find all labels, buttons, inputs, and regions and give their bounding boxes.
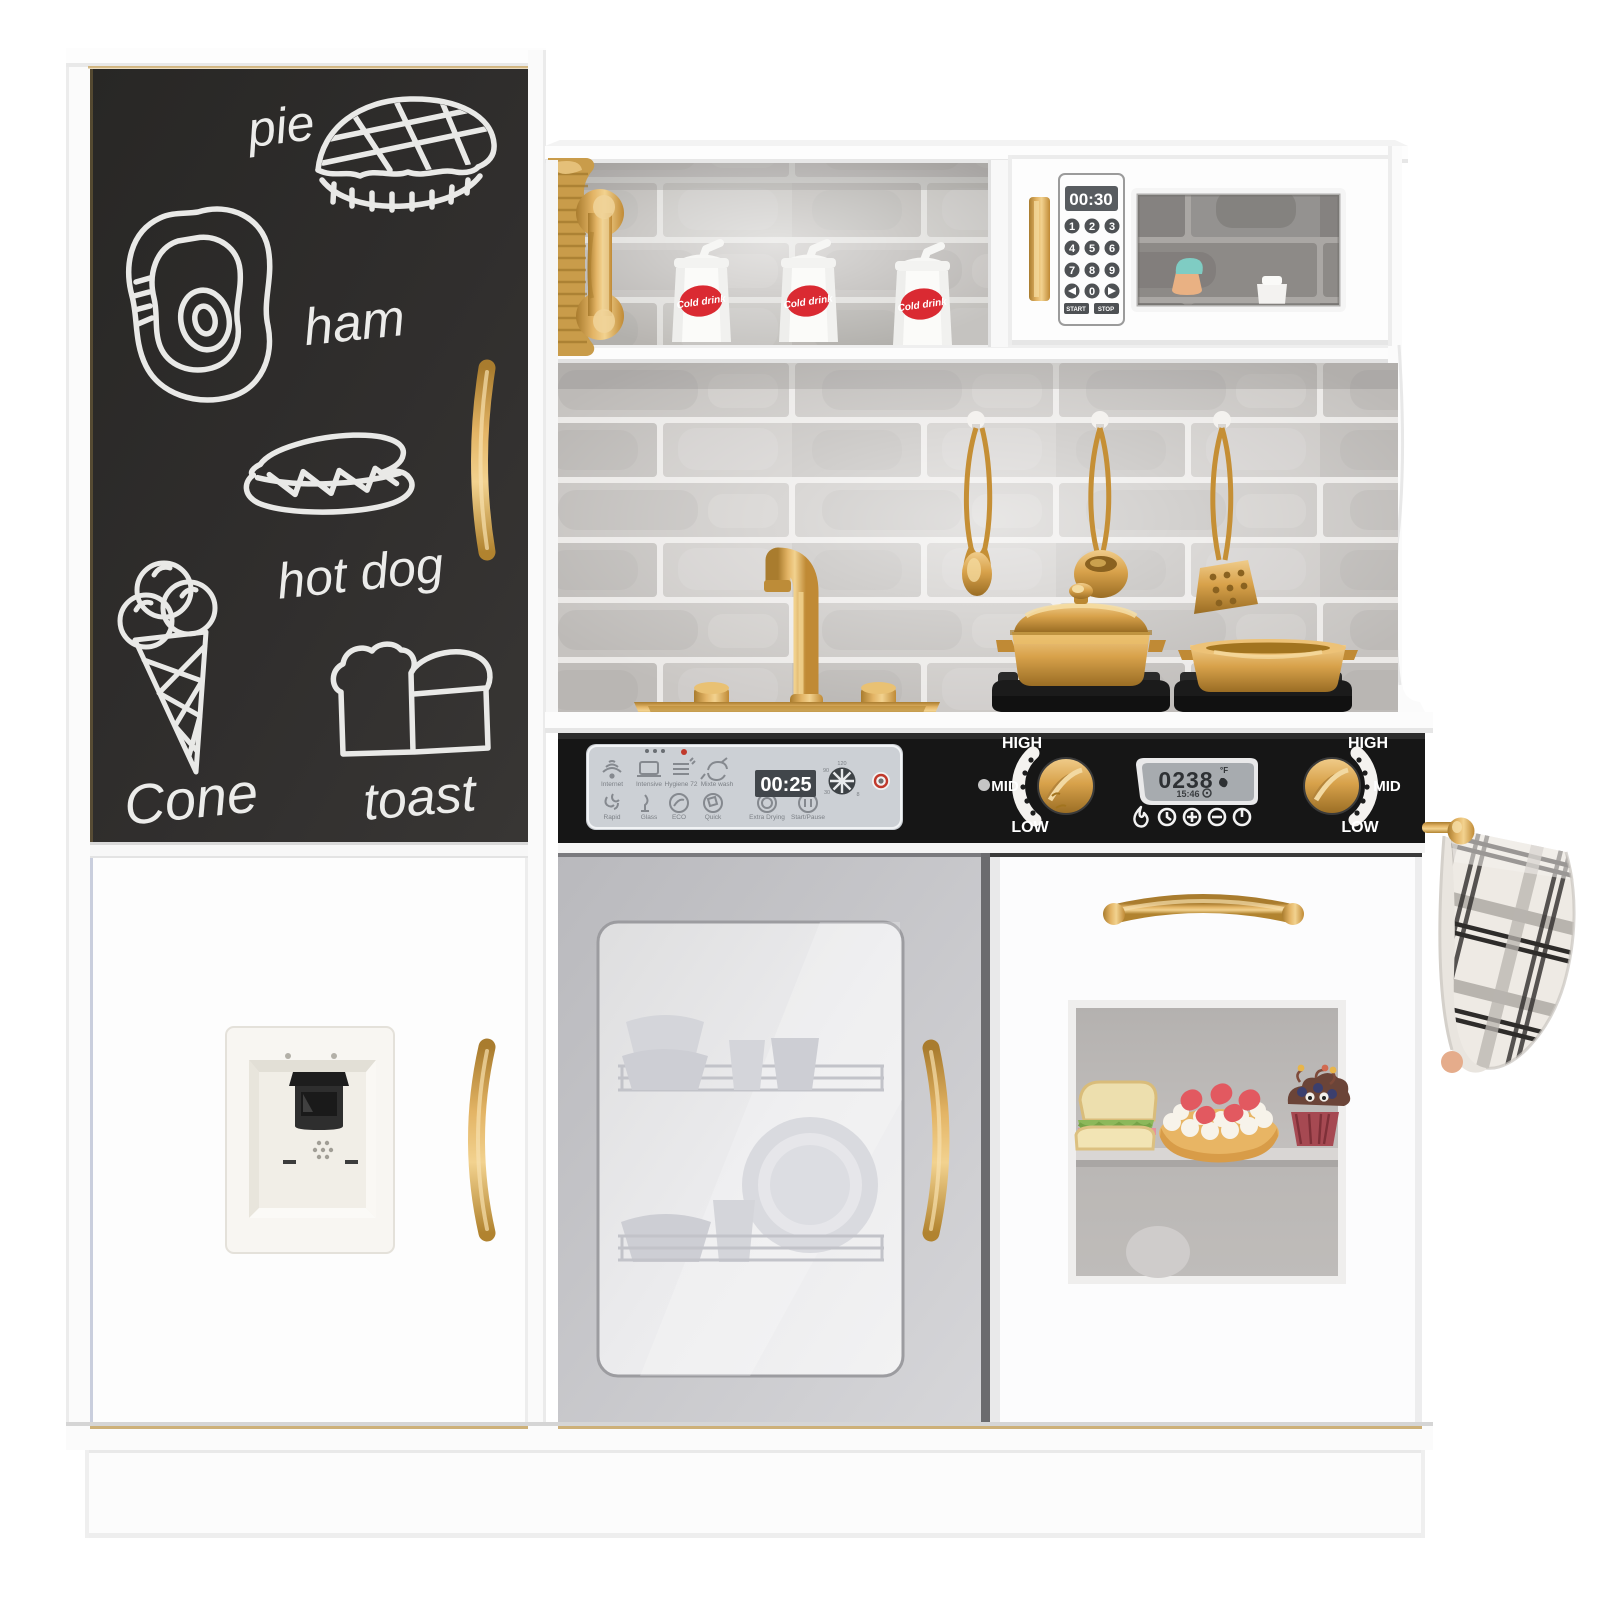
svg-text:30: 30	[824, 790, 830, 796]
svg-text:90: 90	[823, 768, 829, 774]
svg-text:pie: pie	[242, 94, 317, 158]
svg-text:MID: MID	[1373, 778, 1401, 795]
svg-text:ECO: ECO	[672, 814, 686, 821]
svg-text:toast: toast	[361, 764, 481, 832]
svg-text:LOW: LOW	[1341, 819, 1379, 836]
svg-text:Rapid: Rapid	[604, 814, 621, 821]
svg-text:7: 7	[1069, 265, 1075, 277]
svg-text:Quick: Quick	[705, 814, 722, 821]
svg-text:6: 6	[1109, 243, 1115, 255]
svg-text:8: 8	[856, 792, 859, 798]
svg-text:Extra Drying: Extra Drying	[749, 814, 785, 821]
svg-text:ham: ham	[301, 289, 408, 357]
svg-text:Mixte wash: Mixte wash	[701, 781, 734, 788]
svg-text:15:46: 15:46	[1176, 789, 1199, 799]
svg-text:Intensive: Intensive	[636, 781, 662, 788]
svg-text:STOP: STOP	[1098, 307, 1114, 313]
svg-text:5: 5	[1089, 243, 1095, 255]
svg-text:START: START	[1066, 307, 1086, 313]
svg-text:8: 8	[1089, 265, 1095, 277]
svg-text:00:25: 00:25	[760, 774, 811, 796]
svg-text:9: 9	[1109, 265, 1115, 277]
svg-text:°F: °F	[1220, 766, 1228, 775]
svg-text:4: 4	[1069, 243, 1076, 255]
svg-text:1: 1	[1069, 221, 1075, 233]
svg-text:LOW: LOW	[1011, 819, 1049, 836]
svg-text:Glass: Glass	[641, 814, 658, 821]
svg-text:00:30: 00:30	[1069, 190, 1112, 209]
svg-text:3: 3	[1109, 221, 1115, 233]
svg-text:Hygiene 72: Hygiene 72	[665, 781, 698, 788]
svg-text:Internet: Internet	[601, 781, 623, 788]
svg-text:Start/Pause: Start/Pause	[791, 814, 825, 821]
svg-text:MID: MID	[991, 778, 1019, 795]
svg-text:0: 0	[1089, 286, 1095, 298]
svg-text:120: 120	[837, 761, 846, 767]
svg-text:2: 2	[1089, 221, 1095, 233]
